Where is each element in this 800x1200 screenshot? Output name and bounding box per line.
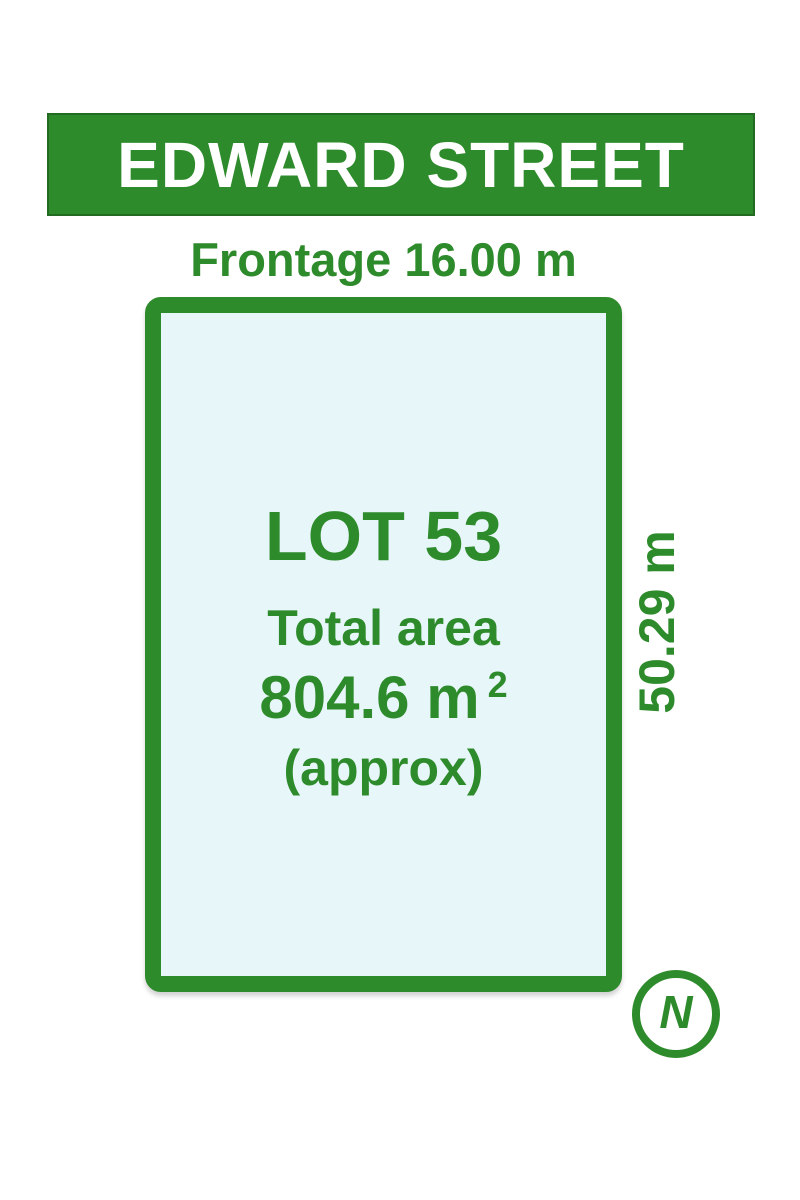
north-compass-icon: N <box>632 970 720 1058</box>
north-label: N <box>659 989 692 1039</box>
lot-area-value: 804.6 m2 <box>259 663 507 733</box>
lot-diagram: EDWARD STREET Frontage 16.00 m LOT 53 To… <box>0 0 800 1200</box>
lot-title: LOT 53 <box>265 501 502 571</box>
lot-area-note: (approx) <box>284 733 484 803</box>
area-superscript: 2 <box>488 664 508 705</box>
lot-boundary: LOT 53 Total area 804.6 m2 (approx) <box>145 297 622 992</box>
side-dimension-label: 50.29 m <box>628 530 686 713</box>
lot-area-number: 804.6 m <box>259 664 479 731</box>
street-name: EDWARD STREET <box>117 128 685 202</box>
frontage-dimension-label: Frontage 16.00 m <box>145 232 622 287</box>
lot-area-label: Total area <box>267 593 500 663</box>
street-banner: EDWARD STREET <box>47 113 755 216</box>
